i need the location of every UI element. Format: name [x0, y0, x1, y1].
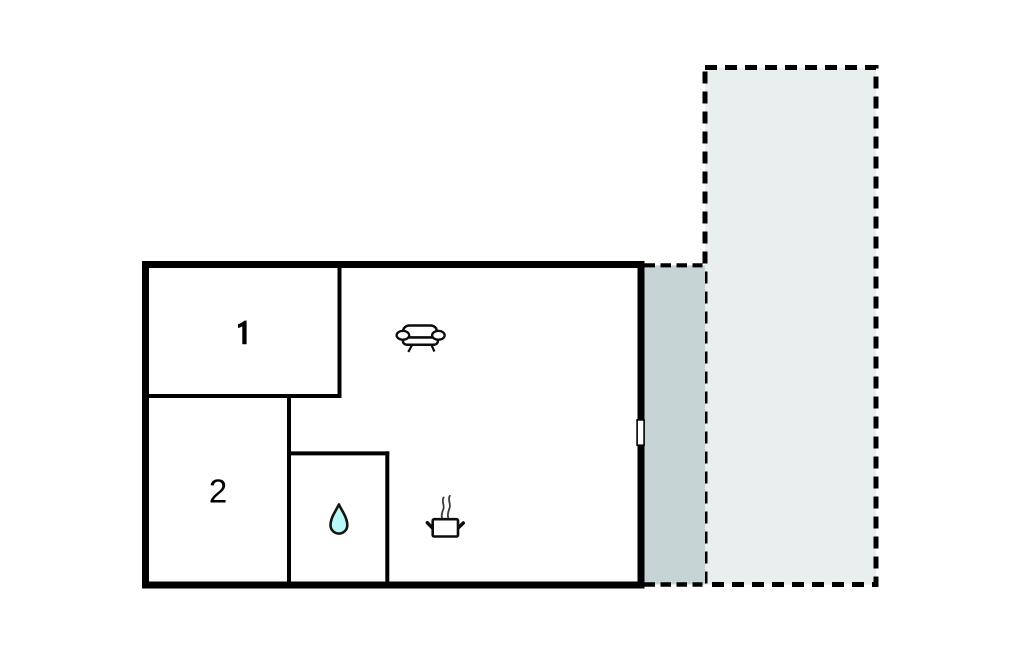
svg-text:2: 2 — [209, 473, 227, 510]
